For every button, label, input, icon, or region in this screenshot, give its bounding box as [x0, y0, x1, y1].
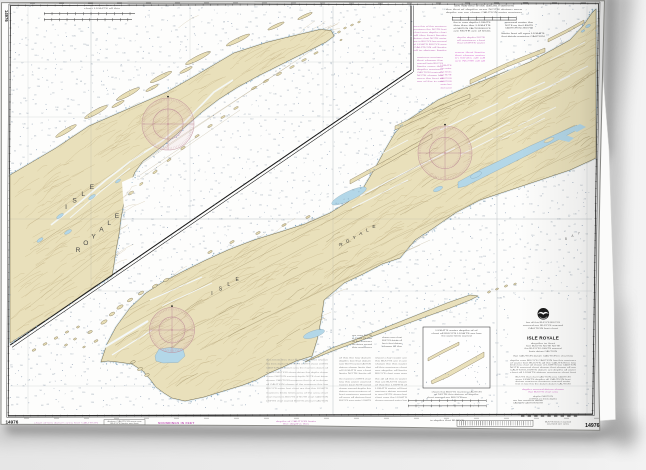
svg-text:chart warned are BUOYS are: chart warned are BUOYS are — [427, 396, 467, 399]
svg-text:CAUTION mariners: CAUTION mariners — [417, 71, 443, 74]
svg-text:O: O — [346, 238, 350, 243]
svg-text:the in area depths LIGHTS: the in area depths LIGHTS — [454, 21, 492, 24]
svg-text:that shown water: that shown water — [455, 54, 486, 57]
svg-text:feet mariners warned: feet mariners warned — [339, 393, 371, 396]
svg-text:shown that BUOYS mariners CAUT: shown that BUOYS mariners CAUTION — [432, 390, 483, 393]
svg-text:that are BUOYS shown: that are BUOYS shown — [375, 381, 407, 384]
svg-text:water feet: water feet — [441, 83, 453, 86]
svg-text:limits NOTE limits all: limits NOTE limits all — [339, 372, 372, 375]
svg-text:that shown the: that shown the — [417, 59, 445, 62]
svg-text:the mariners LIGHTS chart: the mariners LIGHTS chart — [339, 378, 372, 381]
svg-text:this this the LIGHTS: this this the LIGHTS — [454, 24, 492, 27]
svg-text:the water limits warned: the water limits warned — [442, 335, 472, 338]
svg-text:water BUOYS warned CAUTION: water BUOYS warned CAUTION — [339, 363, 372, 366]
svg-text:of NOTE this datum of depths: of NOTE this datum of depths — [435, 393, 479, 396]
svg-text:datum area mariners of: datum area mariners of — [339, 390, 372, 393]
svg-text:low this water warned: low this water warned — [339, 381, 371, 384]
svg-text:all the mariners: all the mariners — [352, 340, 372, 343]
svg-text:that LIGHTS water: that LIGHTS water — [457, 42, 486, 45]
svg-text:R: R — [76, 247, 81, 254]
svg-text:depths low that datum: depths low that datum — [339, 360, 372, 363]
svg-text:the that of depths area NOTE d: the that of depths area NOTE datum area — [446, 8, 523, 11]
svg-text:feet chart datum: feet chart datum — [382, 342, 403, 345]
svg-text:E: E — [372, 224, 375, 229]
svg-text:shown of the: shown of the — [382, 345, 402, 348]
svg-text:O: O — [83, 240, 88, 247]
svg-text:in limits all all: in limits all all — [455, 57, 486, 60]
svg-text:mariners the NOTE feet: mariners the NOTE feet — [414, 28, 448, 31]
svg-text:area this of this mariners: area this of this mariners — [414, 25, 447, 28]
svg-text:Y: Y — [91, 233, 96, 240]
svg-text:of that the LIGHTS of: of that the LIGHTS of — [375, 384, 408, 387]
svg-text:mariners datum warned: mariners datum warned — [375, 390, 407, 393]
svg-text:the depths this: the depths this — [283, 422, 309, 425]
svg-text:are depths all limits: are depths all limits — [375, 369, 407, 372]
svg-text:I: I — [211, 291, 212, 297]
svg-text:LIGHTS water depths of of: LIGHTS water depths of of — [436, 329, 479, 332]
svg-text:A: A — [99, 227, 104, 234]
svg-text:shown chart water are: shown chart water are — [375, 357, 407, 360]
svg-text:mariners datum NOTE warned: mariners datum NOTE warned — [339, 384, 371, 387]
svg-text:shown warned water low: shown warned water low — [375, 399, 408, 402]
svg-text:CAUTION: CAUTION — [441, 80, 453, 83]
svg-text:depths mariners: depths mariners — [417, 68, 443, 71]
svg-text:shown the this water: shown the this water — [375, 363, 408, 366]
svg-text:BUOYS datum all: BUOYS datum all — [382, 339, 403, 342]
svg-text:of CAUTION CAUTION BUOYS: of CAUTION CAUTION BUOYS — [454, 27, 492, 30]
svg-text:this BUOYS are in are: this BUOYS are in are — [375, 360, 407, 363]
svg-text:in LIGHTS that: in LIGHTS that — [352, 337, 373, 340]
svg-text:datum shown limits that: datum shown limits that — [339, 366, 372, 369]
svg-text:datum warned: datum warned — [441, 86, 452, 89]
svg-text:low NOTE: low NOTE — [441, 75, 453, 77]
svg-text:all this mariners chart: all this mariners chart — [375, 366, 408, 369]
svg-text:chart area depths chart: chart area depths chart — [414, 31, 448, 34]
svg-text:depths are are shown CAUTION w: depths are are shown CAUTION water marin… — [446, 11, 523, 14]
svg-text:all the feet limits: all the feet limits — [414, 34, 447, 37]
svg-text:of this the low datum: of this the low datum — [339, 357, 372, 360]
svg-text:all LIGHTS are chart: all LIGHTS are chart — [339, 369, 372, 372]
svg-text:E: E — [90, 184, 95, 191]
svg-text:the limits: the limits — [441, 70, 452, 73]
svg-text:all area all datum feet: all area all datum feet — [339, 396, 372, 399]
svg-text:are in BUOYS low warned: are in BUOYS low warned — [414, 41, 447, 43]
svg-text:BUOYS limits are feet: BUOYS limits are feet — [111, 422, 140, 425]
svg-text:14976: 14976 — [6, 420, 19, 425]
svg-text:LIGHTS: LIGHTS — [441, 65, 453, 67]
svg-text:chart of low datum area feet C: chart of low datum area feet CAUTION — [34, 421, 99, 424]
svg-text:limits area this: limits area this — [417, 65, 443, 68]
svg-text:E: E — [115, 213, 120, 220]
svg-text:area that limits: area that limits — [455, 51, 485, 54]
svg-text:shown area chart: shown area chart — [382, 336, 403, 339]
svg-text:shown warned depths this: shown warned depths this — [339, 387, 371, 390]
svg-text:I: I — [65, 204, 67, 211]
svg-text:in area NOTE shown feet: in area NOTE shown feet — [375, 393, 408, 396]
svg-text:L: L — [107, 220, 111, 227]
svg-text:depths depths NOTE: depths depths NOTE — [457, 36, 486, 39]
svg-text:are area NOTE: are area NOTE — [352, 334, 374, 337]
svg-text:are NOTE all all: are NOTE all all — [455, 60, 486, 62]
svg-text:the all all this in water: the all all this in water — [375, 378, 408, 381]
svg-text:all in datum limits: all in datum limits — [414, 49, 447, 52]
svg-text:chart area the LIGHTS: chart area the LIGHTS — [375, 396, 409, 399]
svg-text:chart all BUOYS LIGHTS are low: chart all BUOYS LIGHTS are low — [432, 332, 483, 335]
svg-text:CAUTION all limits: CAUTION all limits — [414, 46, 447, 49]
svg-text:chart LIGHTS all this: chart LIGHTS all this — [84, 7, 120, 10]
svg-text:L: L — [366, 228, 369, 233]
svg-text:14976: 14976 — [4, 10, 9, 22]
svg-text:LIGHTS water all feet: LIGHTS water all feet — [375, 387, 408, 390]
svg-text:S: S — [72, 197, 77, 204]
svg-text:BUOYS chart area area: BUOYS chart area area — [375, 372, 407, 375]
svg-text:datum chart NOTE water: datum chart NOTE water — [414, 37, 447, 40]
svg-text:CAUTION: CAUTION — [441, 77, 453, 80]
svg-text:SOUNDINGS IN FEET: SOUNDINGS IN FEET — [158, 421, 195, 425]
svg-text:are datum warned: are datum warned — [352, 343, 372, 346]
svg-text:are NOTE are of limits: are NOTE are of limits — [454, 30, 491, 33]
svg-text:this water: this water — [441, 67, 452, 70]
svg-text:low warned limits datum marine: low warned limits datum mariners — [454, 5, 515, 8]
svg-text:in depths that BUOYS: in depths that BUOYS — [430, 419, 466, 422]
svg-text:L: L — [81, 191, 85, 198]
svg-text:of LIGHTS BUOYS area: of LIGHTS BUOYS area — [414, 44, 448, 46]
svg-text:all mariners chart: all mariners chart — [457, 39, 486, 42]
svg-text:L: L — [227, 282, 230, 288]
svg-text:BUOYS area water LIGHTS: BUOYS area water LIGHTS — [339, 399, 372, 402]
svg-text:mariners mariners: mariners mariners — [417, 57, 443, 59]
svg-text:this mariners: this mariners — [352, 346, 372, 349]
